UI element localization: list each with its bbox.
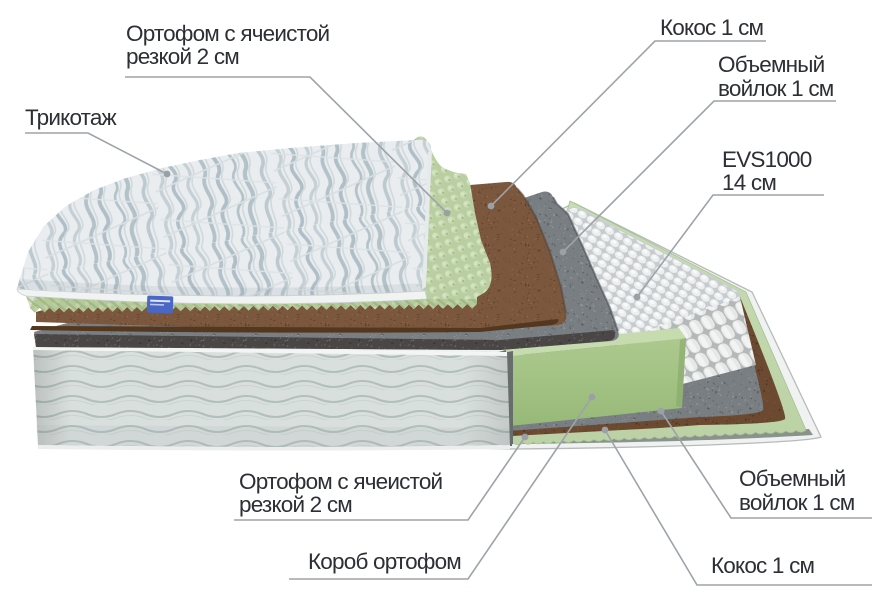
svg-text:Кокос 1 см: Кокос 1 см — [711, 553, 814, 578]
svg-text:Объемный: Объемный — [739, 466, 846, 491]
svg-text:EVS1000: EVS1000 — [722, 147, 812, 172]
svg-text:Трикотаж: Трикотаж — [25, 105, 117, 130]
svg-text:Кокос 1 см: Кокос 1 см — [660, 15, 763, 40]
svg-text:Ортофом с ячеистой: Ортофом с ячеистой — [126, 21, 330, 46]
svg-text:войлок 1 см: войлок 1 см — [739, 490, 854, 515]
svg-text:Объемный: Объемный — [718, 52, 825, 77]
svg-text:Короб ортофом: Короб ортофом — [308, 549, 461, 574]
svg-text:резкой 2 см: резкой 2 см — [239, 492, 352, 517]
svg-text:14 см: 14 см — [722, 170, 776, 195]
svg-text:резкой 2 см: резкой 2 см — [126, 44, 239, 69]
svg-text:Ортофом с ячеистой: Ортофом с ячеистой — [239, 469, 443, 494]
svg-text:войлок 1 см: войлок 1 см — [718, 76, 833, 101]
